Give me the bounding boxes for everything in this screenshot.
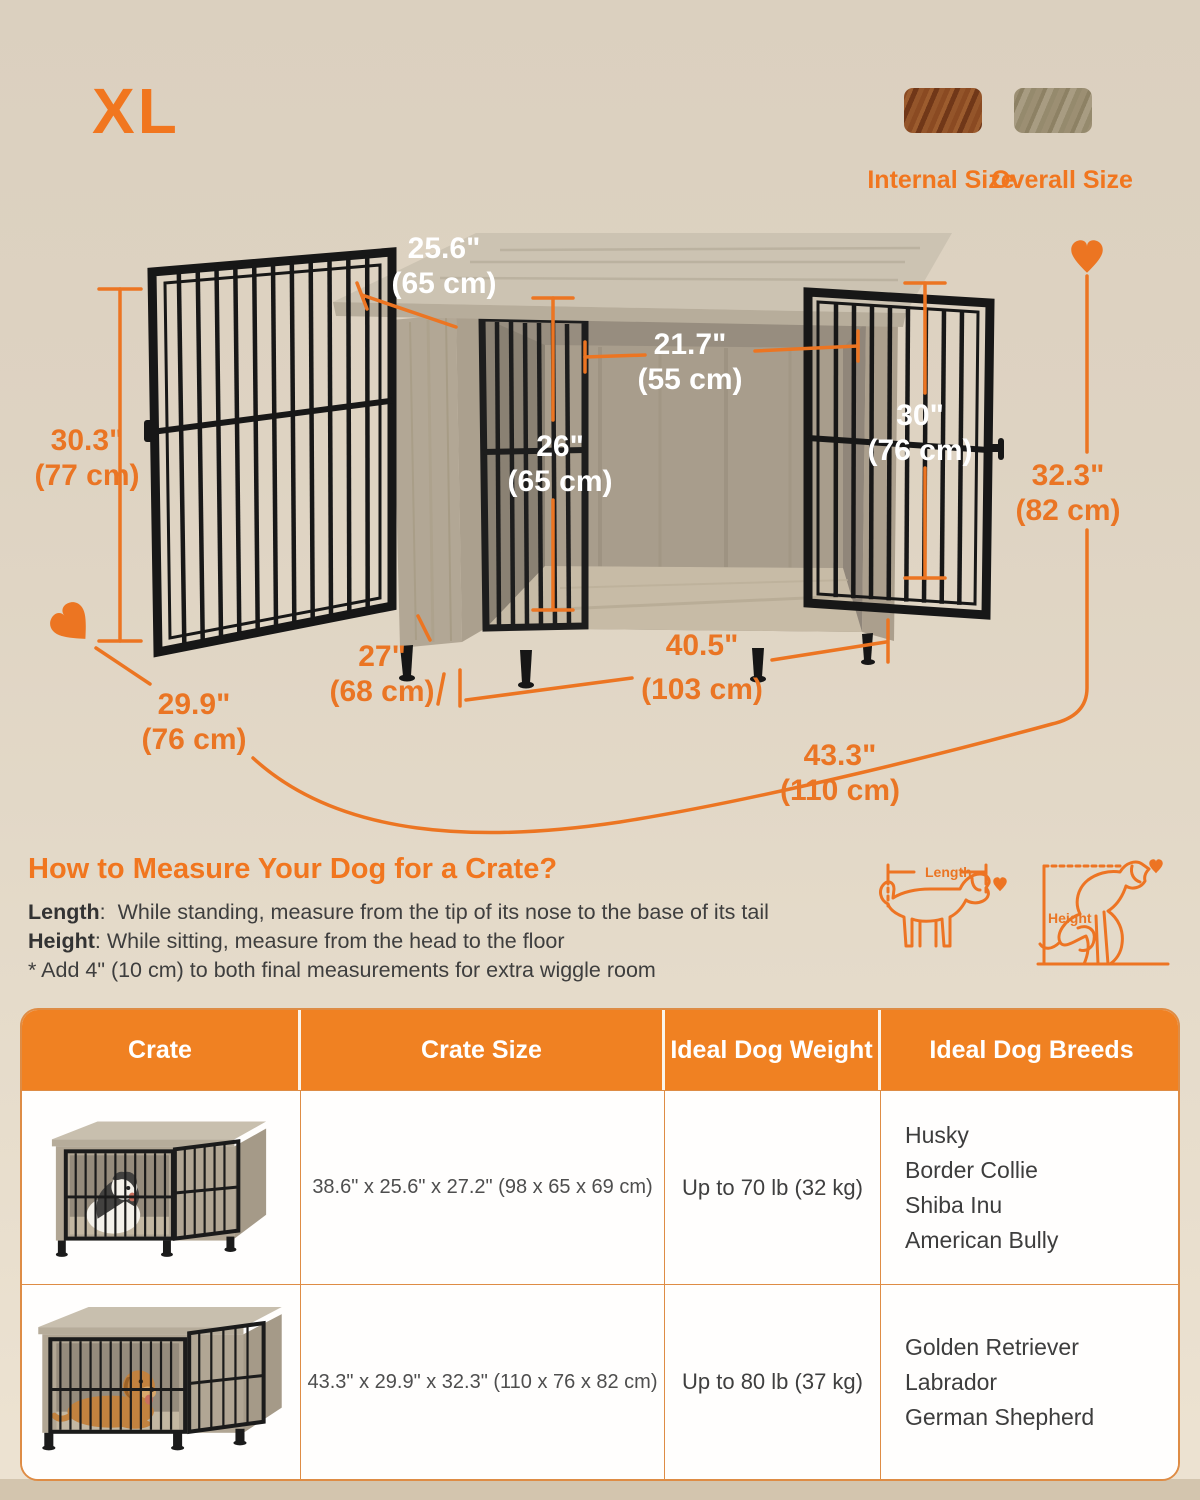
dim-interior-width-in: 40.5" (666, 628, 739, 663)
crate-photo-small (42, 1113, 280, 1263)
dog-weight-small: Up to 70 lb (32 kg) (665, 1090, 881, 1284)
breed-item: Shiba Inu (905, 1188, 1002, 1223)
heart-icon (1149, 859, 1163, 873)
dog-weight-large: Up to 80 lb (37 kg) (665, 1284, 881, 1479)
breed-item: Labrador (905, 1365, 997, 1400)
dim-front-height: 26"(65 cm) (507, 429, 612, 499)
measure-section-title: How to Measure Your Dog for a Crate? (28, 853, 557, 886)
crate-photo-cell-small (22, 1090, 301, 1284)
crate-body (333, 233, 952, 689)
dim-left-door-height: 30.3"(77 cm) (34, 423, 139, 493)
measure-length-line: Length: While standing, measure from the… (28, 898, 769, 927)
heart-icon (1071, 240, 1103, 273)
crate-photo-cell-large (22, 1284, 301, 1479)
dim-interior-width-cm: (103 cm) (641, 672, 763, 707)
dim-door-width: 21.7"(55 cm) (637, 327, 742, 397)
dog-breeds-large: Golden Retriever Labrador German Shepher… (881, 1284, 1180, 1479)
breed-item: American Bully (905, 1223, 1058, 1258)
dim-overall-width: 43.3"(110 cm) (780, 738, 900, 808)
dog-breeds-small: Husky Border Collie Shiba Inu American B… (881, 1090, 1180, 1284)
header-crate-size: Crate Size (301, 1010, 665, 1090)
crate-size-large: 43.3" x 29.9" x 32.3" (110 x 76 x 82 cm) (301, 1284, 665, 1479)
crate-size-small: 38.6" x 25.6" x 27.2" (98 x 65 x 69 cm) (301, 1090, 665, 1284)
breed-item: German Shepherd (905, 1400, 1094, 1435)
crate-comparison-table: Crate Crate Size Ideal Dog Weight Ideal … (20, 1008, 1180, 1481)
measure-note-line: * Add 4" (10 cm) to both final measureme… (28, 956, 769, 985)
header-ideal-dog-weight: Ideal Dog Weight (665, 1010, 881, 1090)
heart-icon (46, 598, 100, 652)
dim-base-depth: 27"(68 cm) (329, 639, 434, 709)
standing-dog-length-label: Length (925, 864, 972, 880)
infographic-page: XL Internal Size Overall Size (0, 0, 1200, 1500)
crate-photo-large (30, 1299, 292, 1465)
dim-right-door-height: 30"(76 cm) (867, 398, 972, 468)
measure-height-line: Height: While sitting, measure from the … (28, 927, 769, 956)
sitting-dog-height-label: Height (1048, 910, 1092, 926)
breed-item: Border Collie (905, 1153, 1038, 1188)
breed-item: Golden Retriever (905, 1330, 1079, 1365)
crate-legs (399, 633, 875, 689)
header-crate: Crate (22, 1010, 301, 1090)
dim-overall-depth: 29.9"(76 cm) (141, 687, 246, 757)
dim-top-depth: 25.6"(65 cm) (391, 231, 496, 301)
bottom-strip (0, 1479, 1200, 1500)
measure-instructions: Length: While standing, measure from the… (28, 898, 769, 985)
dim-overall-height: 32.3"(82 cm) (1015, 458, 1120, 528)
dim-line-overall-depth (96, 648, 150, 684)
breed-item: Husky (905, 1118, 969, 1153)
heart-icon (993, 877, 1007, 891)
header-ideal-dog-breeds: Ideal Dog Breeds (881, 1010, 1180, 1090)
